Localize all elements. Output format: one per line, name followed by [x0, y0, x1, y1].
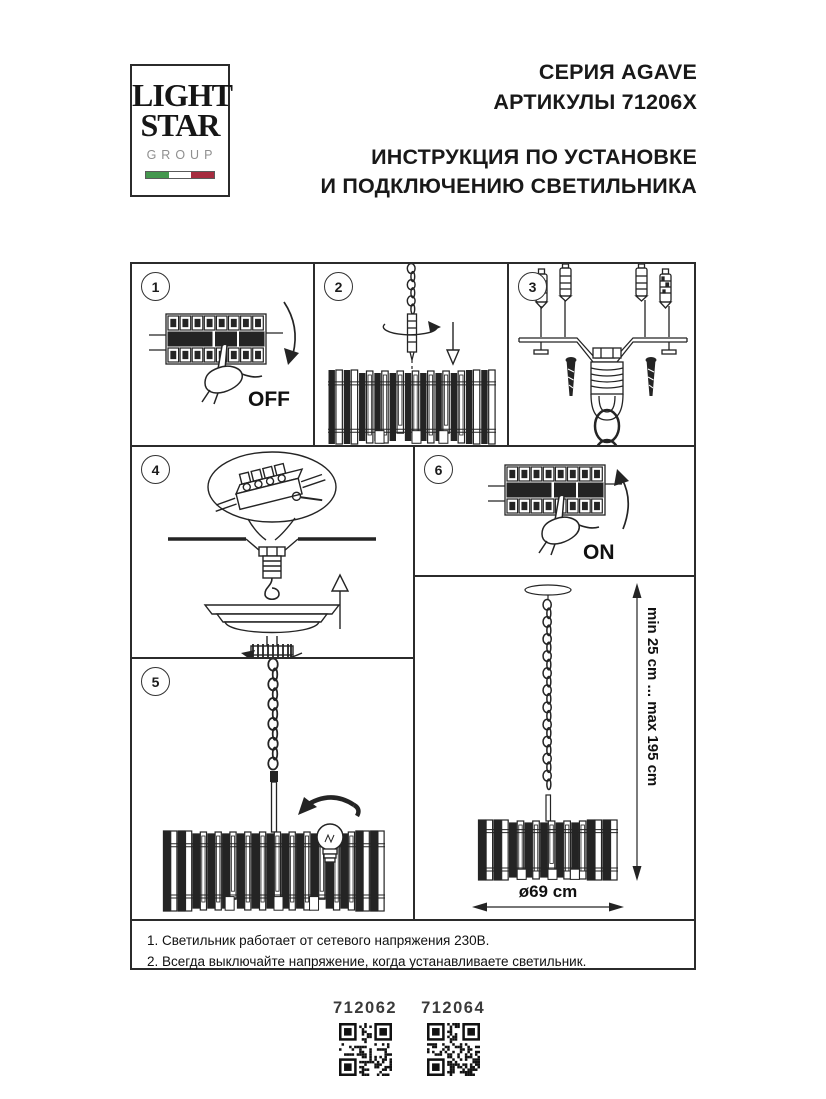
circuit-breaker-icon — [488, 465, 622, 515]
articles-title: АРТИКУЛЫ 71206X — [493, 90, 697, 115]
product-code-column: 712064 — [421, 999, 485, 1076]
ceiling-canopy-icon — [205, 605, 339, 657]
product-codes: 712062 712064 — [333, 999, 485, 1076]
step-number: 2 — [335, 279, 343, 295]
step-number: 5 — [152, 674, 160, 690]
arrow-up-curve-icon — [614, 469, 629, 529]
chandelier-drum-icon — [478, 820, 618, 880]
step-panel-3: 3 — [509, 264, 694, 447]
diameter-label: ø69 cm — [463, 882, 633, 902]
lightstar-logo: LIGHT STAR GROUP — [130, 64, 230, 197]
qr-code — [427, 1023, 480, 1076]
chandelier-drum-icon — [328, 370, 496, 444]
step-panel-5: 5 — [132, 659, 415, 919]
chain-connector — [270, 771, 278, 782]
chain-icon — [268, 659, 277, 770]
step-number-badge: 2 — [324, 272, 353, 301]
safety-notes: 1. Светильник работает от сетевого напря… — [132, 919, 694, 968]
step-number: 1 — [152, 279, 160, 295]
hanging-rod — [272, 782, 277, 832]
steps-grid: 1 OFF 2 — [130, 262, 696, 970]
height-range-label: min 25 cm ... max 195 cm — [644, 607, 661, 869]
arrow-down-curve-icon — [284, 302, 299, 365]
step-number: 3 — [529, 279, 537, 295]
product-code-column: 712062 — [333, 999, 397, 1076]
logo-text-star: STAR — [132, 110, 228, 140]
instruction-title-line1: ИНСТРУКЦИЯ ПО УСТАНОВКЕ — [371, 145, 697, 170]
note-line-2: 2. Всегда выключайте напряжение, когда у… — [147, 951, 694, 972]
step-panel-2: 2 — [315, 264, 509, 447]
step-panel-6: 6 ON — [415, 447, 694, 577]
height-dimension-line — [633, 583, 642, 881]
ceiling-canopy-icon — [525, 585, 571, 600]
step-number-badge: 4 — [141, 455, 170, 484]
chain-icon — [407, 264, 415, 314]
series-title: СЕРИЯ AGAVE — [539, 60, 697, 85]
product-code-label: 712062 — [333, 999, 397, 1018]
product-code-label: 712064 — [421, 999, 485, 1018]
dimensions-panel: min 25 cm ... max 195 cm ø69 cm — [415, 577, 694, 919]
instruction-sheet: LIGHT STAR GROUP СЕРИЯ AGAVE АРТИКУЛЫ 71… — [0, 0, 826, 1099]
power-on-label: ON — [583, 541, 615, 565]
logo-text-light: LIGHT — [132, 80, 228, 110]
hanging-rod — [546, 795, 551, 821]
step-number: 4 — [152, 462, 160, 478]
step-number-badge: 5 — [141, 667, 170, 696]
note-line-1: 1. Светильник работает от сетевого напря… — [147, 930, 694, 951]
step-panel-4: 4 — [132, 447, 415, 659]
circuit-breaker-icon — [149, 314, 283, 364]
step-number-badge: 1 — [141, 272, 170, 301]
italian-flag-stripe — [145, 171, 215, 179]
step-number-badge: 6 — [424, 455, 453, 484]
logo-text-group: GROUP — [132, 148, 228, 162]
chandelier-drum-icon — [163, 831, 385, 911]
step-number-badge: 3 — [518, 272, 547, 301]
qr-code — [339, 1023, 392, 1076]
step-panel-1: 1 OFF — [132, 264, 315, 447]
chain-link-icon — [595, 410, 619, 445]
power-off-label: OFF — [248, 388, 290, 412]
step-number: 6 — [435, 462, 443, 478]
terminal-block-balloon-icon — [208, 452, 336, 540]
down-arrow-icon — [447, 322, 459, 364]
threaded-rod-icon — [408, 314, 417, 360]
chain-icon — [543, 600, 551, 790]
up-arrow-icon — [332, 575, 348, 629]
wall-anchor-icon — [534, 264, 676, 354]
diameter-dimension-line — [472, 903, 624, 912]
instruction-title-line2: И ПОДКЛЮЧЕНИЮ СВЕТИЛЬНИКА — [321, 174, 697, 199]
